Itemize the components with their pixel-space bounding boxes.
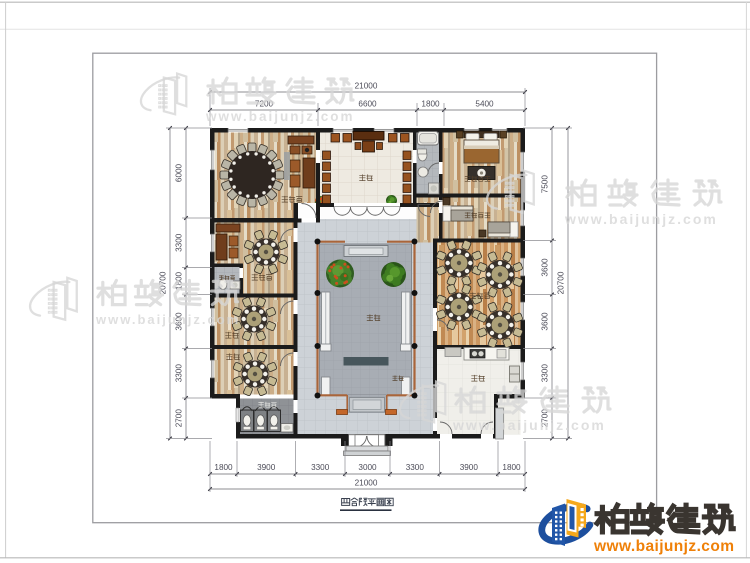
svg-text:1800: 1800 <box>214 463 233 472</box>
svg-text:3600: 3600 <box>541 312 550 331</box>
svg-text:www.baijunjz.com: www.baijunjz.com <box>95 312 240 327</box>
svg-text:20700: 20700 <box>557 271 566 294</box>
svg-text:3300: 3300 <box>175 364 184 383</box>
svg-text:www.baijunjz.com: www.baijunjz.com <box>593 538 734 555</box>
svg-text:3300: 3300 <box>175 233 184 252</box>
svg-text:3300: 3300 <box>541 364 550 383</box>
svg-text:5400: 5400 <box>475 100 494 109</box>
svg-text:6000: 6000 <box>175 163 184 182</box>
svg-text:www.baijunjz.com: www.baijunjz.com <box>205 109 355 124</box>
svg-text:21000: 21000 <box>355 82 378 91</box>
svg-text:3600: 3600 <box>541 258 550 277</box>
svg-text:1800: 1800 <box>502 463 521 472</box>
svg-text:www.baijunjz.com: www.baijunjz.com <box>564 211 718 227</box>
svg-text:7500: 7500 <box>541 175 550 194</box>
svg-text:3300: 3300 <box>406 463 425 472</box>
svg-text:3900: 3900 <box>257 463 276 472</box>
svg-text:6600: 6600 <box>358 100 377 109</box>
svg-text:21000: 21000 <box>355 479 378 488</box>
svg-text:3000: 3000 <box>358 463 377 472</box>
svg-text:3300: 3300 <box>311 463 330 472</box>
svg-text:2700: 2700 <box>175 409 184 428</box>
svg-text:1800: 1800 <box>421 100 440 109</box>
svg-text:www.baijunjz.com: www.baijunjz.com <box>452 417 606 433</box>
svg-text:3900: 3900 <box>460 463 479 472</box>
